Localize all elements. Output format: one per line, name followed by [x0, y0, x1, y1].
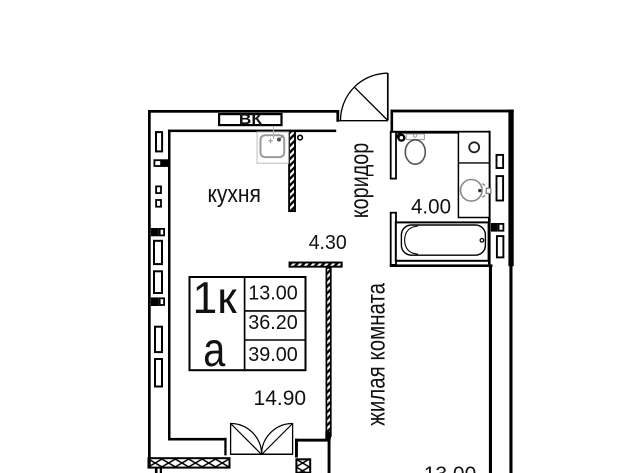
svg-text:14.90: 14.90 — [254, 387, 307, 410]
svg-text:4.30: 4.30 — [309, 231, 347, 254]
svg-text:а: а — [203, 324, 225, 377]
svg-text:13.00: 13.00 — [424, 463, 477, 473]
svg-text:ВК: ВК — [239, 111, 263, 128]
svg-text:39.00: 39.00 — [248, 344, 298, 366]
svg-text:1к: 1к — [192, 274, 237, 323]
svg-text:13.00: 13.00 — [248, 283, 298, 305]
svg-text:жилая комната: жилая комната — [361, 282, 391, 425]
svg-text:36.20: 36.20 — [248, 312, 298, 334]
svg-text:коридор: коридор — [344, 143, 374, 219]
svg-text:4.00: 4.00 — [411, 196, 451, 219]
svg-text:кухня: кухня — [207, 181, 261, 208]
